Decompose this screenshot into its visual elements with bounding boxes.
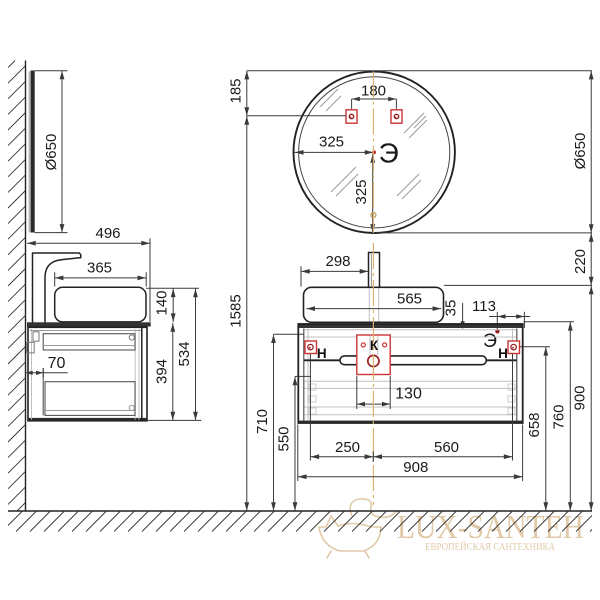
svg-text:325: 325: [353, 179, 370, 204]
svg-text:1585: 1585: [228, 294, 245, 327]
svg-text:565: 565: [397, 291, 422, 308]
svg-text:908: 908: [403, 459, 428, 476]
svg-text:325: 325: [319, 134, 344, 151]
svg-text:ЕВРОПЕЙСКАЯ САНТЕХНИКА: ЕВРОПЕЙСКАЯ САНТЕХНИКА: [425, 541, 556, 553]
svg-text:900: 900: [572, 385, 589, 410]
svg-text:Н: Н: [498, 346, 508, 361]
svg-text:К: К: [370, 338, 379, 353]
svg-text:185: 185: [228, 78, 245, 103]
svg-text:534: 534: [176, 341, 193, 366]
svg-text:560: 560: [434, 439, 459, 456]
svg-text:365: 365: [87, 260, 112, 277]
svg-text:298: 298: [325, 253, 350, 270]
svg-text:710: 710: [254, 409, 271, 434]
svg-text:496: 496: [95, 225, 120, 242]
svg-text:Н: Н: [317, 346, 327, 361]
svg-text:Э: Э: [379, 138, 399, 169]
svg-text:Ø650: Ø650: [43, 134, 60, 171]
svg-text:130: 130: [395, 386, 422, 403]
svg-text:Э: Э: [483, 330, 497, 352]
svg-text:394: 394: [154, 359, 171, 384]
svg-text:70: 70: [48, 355, 66, 372]
svg-text:550: 550: [275, 426, 292, 451]
svg-text:Ø650: Ø650: [572, 133, 589, 170]
svg-text:760: 760: [551, 404, 568, 429]
svg-text:113: 113: [472, 298, 496, 315]
svg-text:35: 35: [443, 300, 460, 317]
svg-text:250: 250: [335, 439, 360, 456]
svg-text:220: 220: [572, 249, 589, 274]
svg-text:658: 658: [526, 412, 543, 437]
svg-text:140: 140: [154, 290, 171, 315]
